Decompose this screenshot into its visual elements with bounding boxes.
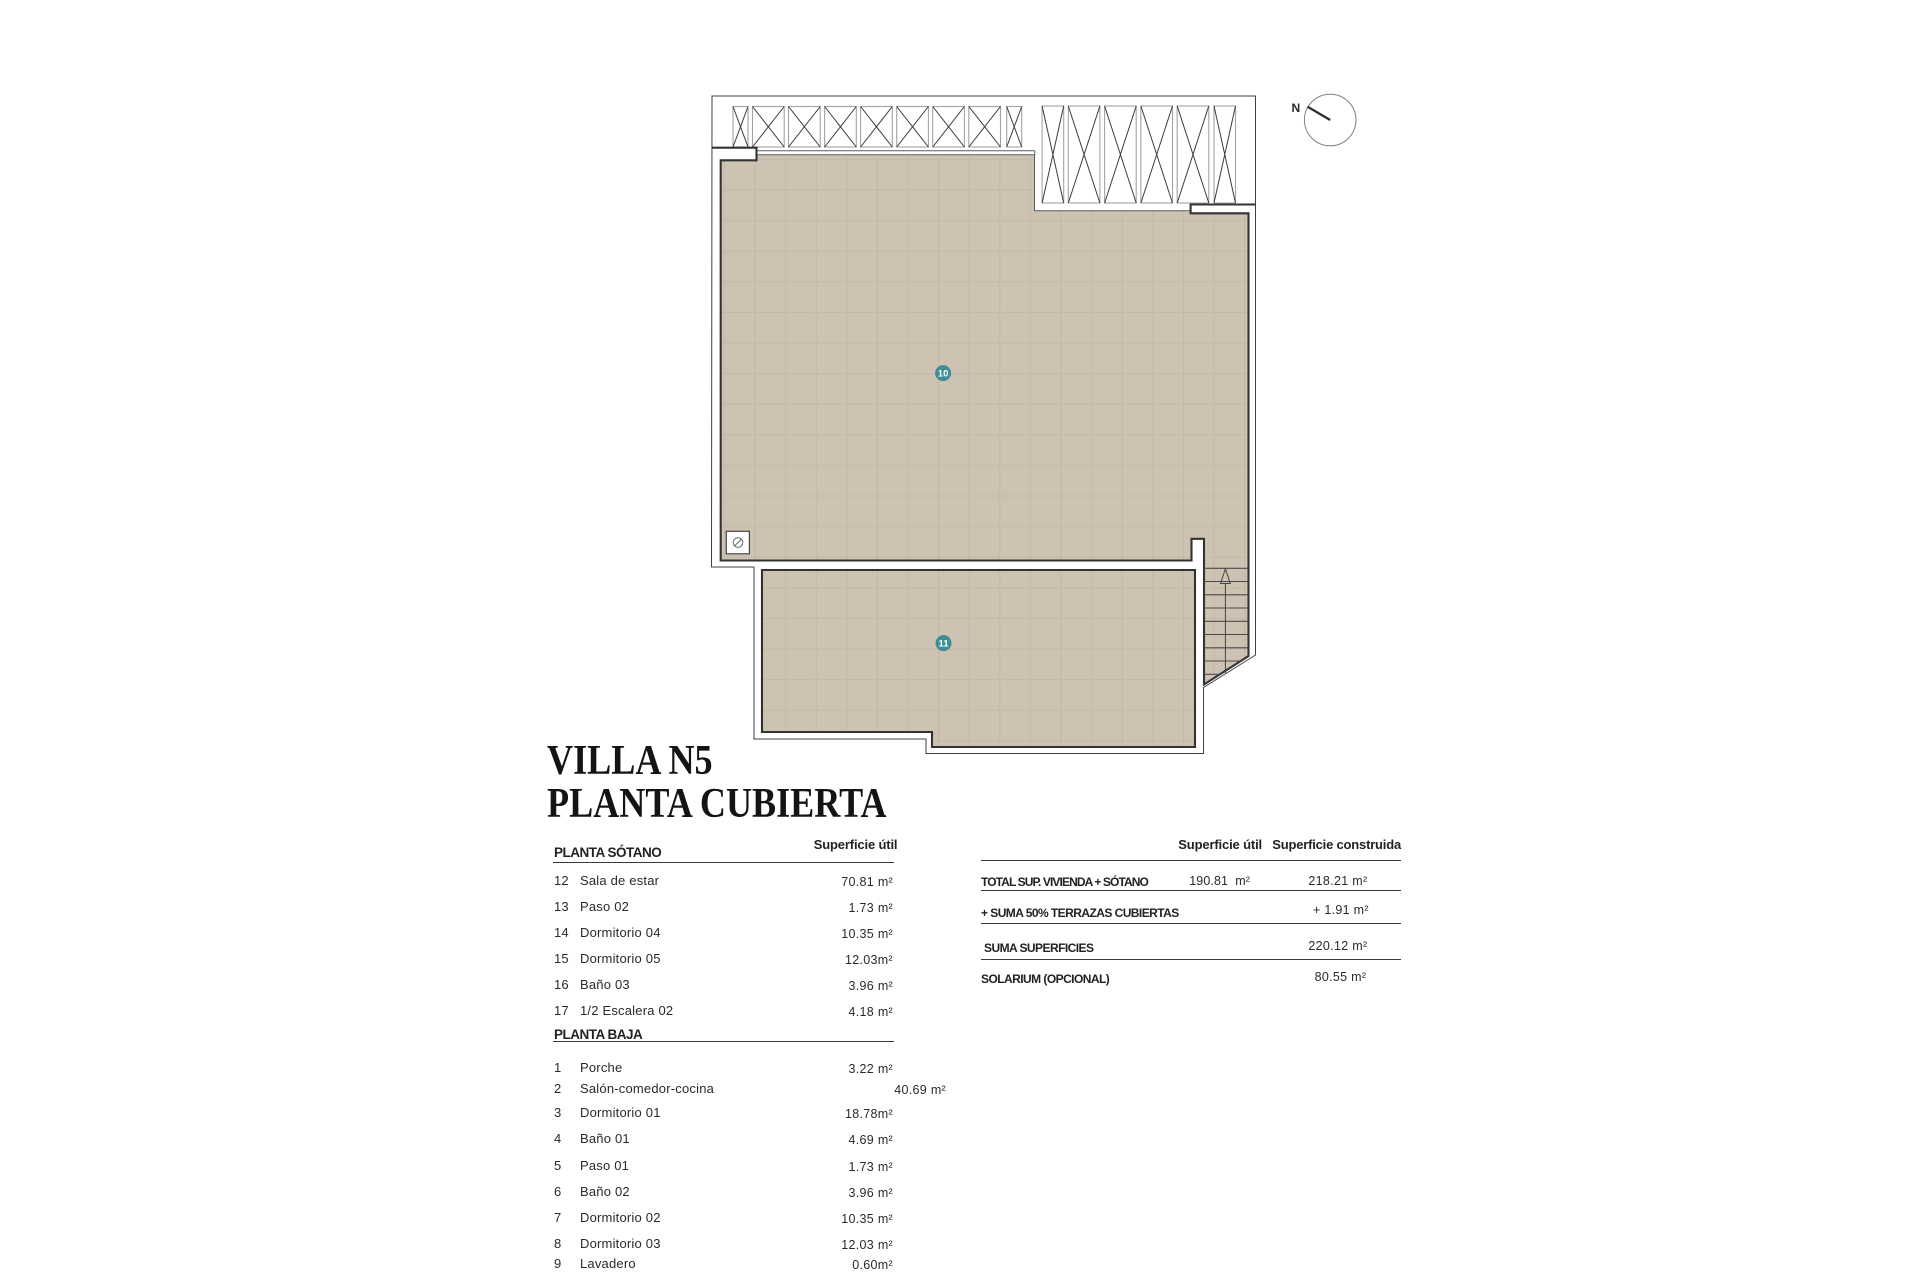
svg-text:N: N xyxy=(1292,101,1301,115)
svg-text:10: 10 xyxy=(938,369,949,380)
svg-text:11: 11 xyxy=(938,639,949,650)
